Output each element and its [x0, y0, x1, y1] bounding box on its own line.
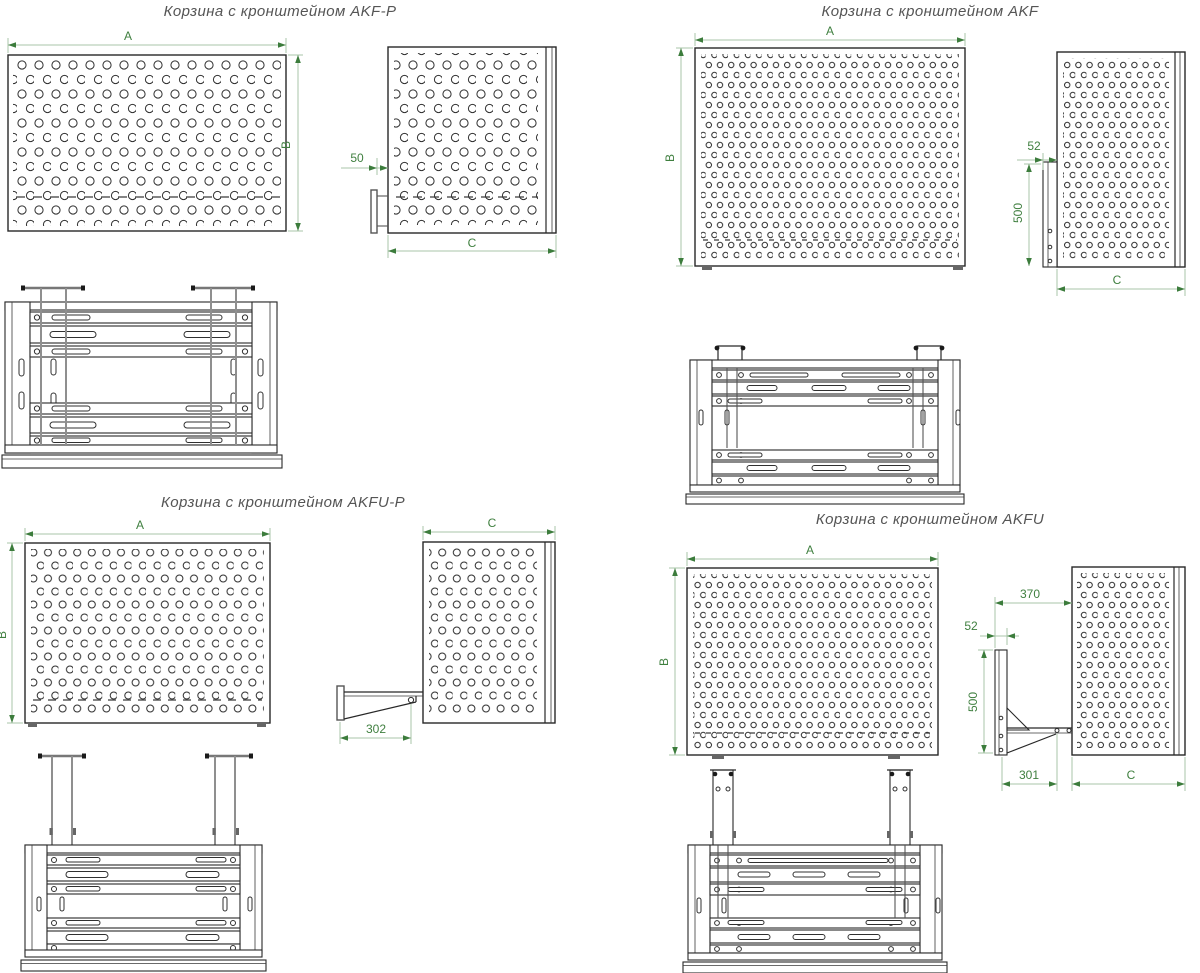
akfu-dim-370: 370	[1020, 587, 1040, 601]
akfu-dim-301: 301	[1019, 768, 1039, 782]
akf-front-view: A B	[663, 24, 965, 270]
akf-p-dim-b: B	[279, 141, 293, 149]
akf-p-quadrant: Корзина с кронштейном AKF-P A B	[2, 3, 556, 468]
akfu-p-side-view: C 302	[337, 516, 555, 744]
akfu-side-view: 370 52 500 301 C	[964, 567, 1185, 791]
technical-drawing-canvas: Корзина с кронштейном AKF-P A B	[0, 0, 1200, 973]
akf-p-dim-a: A	[124, 29, 132, 43]
akfu-p-dim-c: C	[488, 516, 497, 530]
gusset	[1007, 708, 1029, 730]
akfu-p-dim-302: 302	[366, 722, 386, 736]
akf-p-bottom-view	[2, 286, 282, 469]
akfu-quadrant: Корзина с кронштейном AKFU A B	[657, 511, 1185, 973]
akf-dim-c: C	[1113, 273, 1122, 287]
akf-dim-b: B	[663, 154, 677, 162]
akfu-p-front-view: A B	[0, 518, 270, 727]
akf-dim-a: A	[826, 24, 834, 38]
wall-plate	[337, 686, 344, 720]
drawing-sheet: Корзина с кронштейном AKF-P A B	[0, 0, 1200, 973]
mount-rail	[1043, 162, 1057, 267]
akfu-dim-a: A	[806, 543, 814, 557]
akf-bottom-view	[686, 346, 964, 504]
akf-p-title: Корзина с кронштейном AKF-P	[164, 3, 397, 20]
akf-side-view: 52 500 C	[1011, 52, 1185, 296]
akf-title: Корзина с кронштейном AKF	[822, 3, 1039, 20]
akf-dim-52: 52	[1027, 139, 1041, 153]
akf-p-dim-50: 50	[350, 151, 364, 165]
akf-p-side-view: 50 C	[341, 47, 556, 258]
akfu-front-view: A B	[657, 543, 938, 759]
wall-plate	[371, 190, 377, 233]
akfu-bottom-view	[683, 770, 947, 973]
akf-p-front-view: A B	[8, 29, 303, 231]
akf-dim-500: 500	[1011, 203, 1025, 223]
akfu-dim-c: C	[1127, 768, 1136, 782]
akfu-p-title: Корзина с кронштейном AKFU-P	[161, 494, 405, 511]
akfu-dim-b: B	[657, 658, 671, 666]
akfu-p-dim-a: A	[136, 518, 144, 532]
akf-p-dim-c: C	[468, 236, 477, 250]
akfu-dim-500: 500	[966, 692, 980, 712]
akfu-p-quadrant: Корзина с кронштейном AKFU-P A B	[0, 494, 555, 971]
akfu-title: Корзина с кронштейном AKFU	[816, 511, 1044, 528]
akf-quadrant: Корзина с кронштейном AKF A B	[663, 3, 1185, 504]
mount-rail	[995, 650, 1007, 755]
akfu-p-bottom-view	[21, 754, 266, 972]
akfu-p-dim-b: B	[0, 631, 9, 639]
akfu-dim-52: 52	[964, 619, 978, 633]
